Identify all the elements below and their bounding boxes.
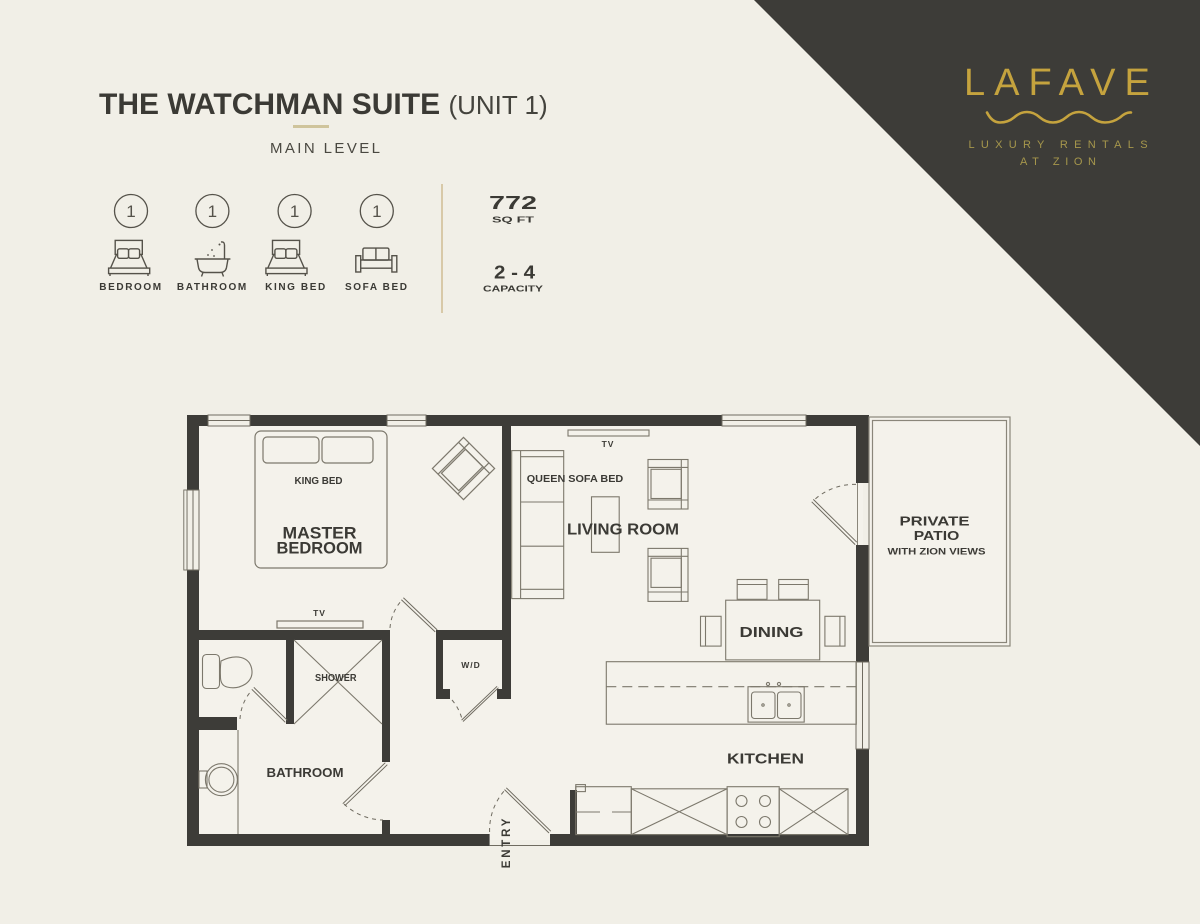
svg-text:KING BED: KING BED — [295, 476, 343, 487]
svg-text:WITH ZION VIEWS: WITH ZION VIEWS — [888, 547, 986, 558]
svg-text:DINING: DINING — [740, 624, 804, 641]
svg-text:TV: TV — [313, 608, 326, 618]
svg-text:SQ FT: SQ FT — [492, 215, 535, 225]
svg-text:BATHROOM: BATHROOM — [177, 282, 248, 293]
svg-text:LIVING ROOM: LIVING ROOM — [567, 522, 679, 539]
svg-text:PRIVATE: PRIVATE — [900, 514, 970, 528]
svg-text:TV: TV — [602, 439, 615, 449]
svg-text:W/D: W/D — [461, 660, 481, 670]
svg-text:ENTRY: ENTRY — [501, 816, 513, 869]
svg-text:KITCHEN: KITCHEN — [727, 751, 804, 768]
svg-text:SHOWER: SHOWER — [315, 673, 357, 684]
svg-text:BEDROOM: BEDROOM — [277, 539, 363, 557]
svg-text:QUEEN SOFA BED: QUEEN SOFA BED — [527, 474, 624, 485]
svg-text:1: 1 — [290, 202, 299, 221]
svg-text:SOFA BED: SOFA BED — [345, 282, 409, 293]
svg-text:BEDROOM: BEDROOM — [99, 282, 162, 293]
svg-text:1: 1 — [372, 202, 381, 221]
svg-text:772: 772 — [489, 192, 537, 213]
svg-text:CAPACITY: CAPACITY — [483, 284, 543, 294]
svg-text:1: 1 — [208, 202, 217, 221]
svg-text:2 - 4: 2 - 4 — [494, 262, 536, 283]
svg-text:BATHROOM: BATHROOM — [267, 766, 344, 780]
svg-text:1: 1 — [126, 202, 135, 221]
svg-text:KING BED: KING BED — [265, 282, 327, 293]
svg-text:PATIO: PATIO — [914, 529, 960, 543]
